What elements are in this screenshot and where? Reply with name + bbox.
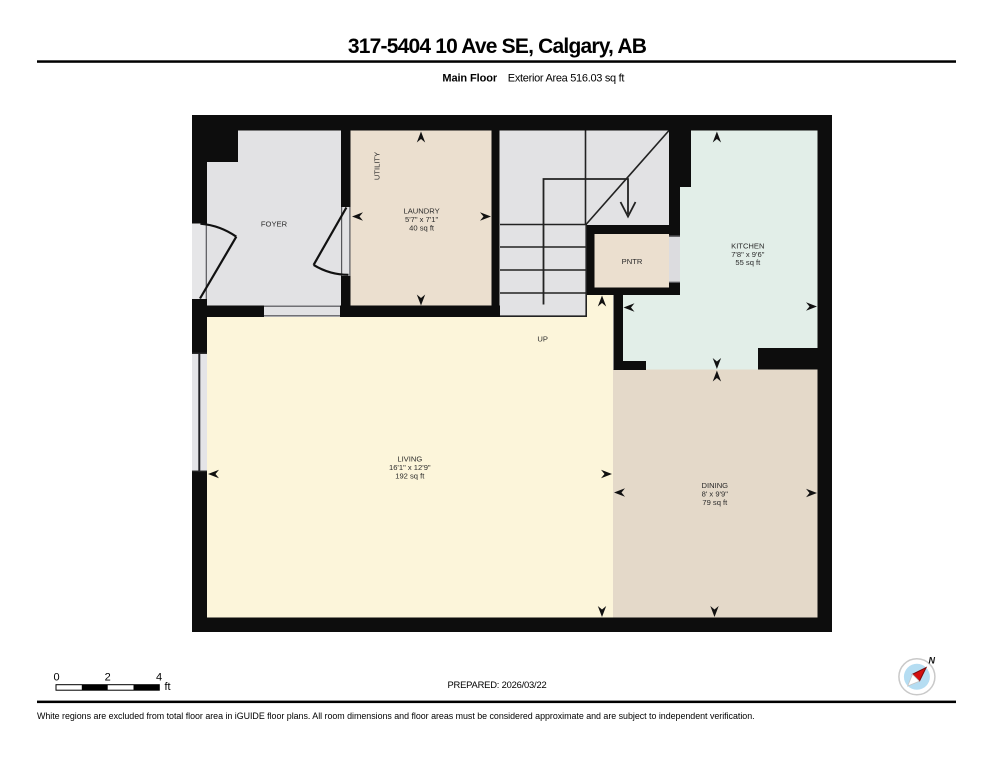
svg-text:UTILITY: UTILITY	[373, 152, 382, 180]
svg-text:55 sq ft: 55 sq ft	[735, 258, 761, 267]
svg-text:UP: UP	[537, 334, 548, 343]
svg-text:40 sq ft: 40 sq ft	[409, 223, 435, 232]
svg-text:PREPARED: 2026/03/22: PREPARED: 2026/03/22	[447, 679, 546, 690]
svg-text:White regions are excluded fro: White regions are excluded from total fl…	[37, 711, 755, 721]
svg-text:317-5404 10 Ave SE, Calgary, A: 317-5404 10 Ave SE, Calgary, AB	[348, 35, 647, 58]
svg-text:Main Floor: Main Floor	[442, 73, 497, 85]
svg-text:FOYER: FOYER	[261, 219, 288, 228]
svg-text:ft: ft	[165, 681, 171, 693]
svg-text:79 sq ft: 79 sq ft	[702, 498, 728, 507]
svg-text:0: 0	[53, 671, 59, 683]
svg-text:Exterior Area 516.03 sq ft: Exterior Area 516.03 sq ft	[508, 73, 625, 85]
svg-text:PNTR: PNTR	[622, 257, 643, 266]
svg-text:2: 2	[105, 671, 111, 683]
svg-text:4: 4	[156, 671, 162, 683]
svg-text:192 sq ft: 192 sq ft	[395, 471, 425, 480]
svg-text:N: N	[929, 656, 936, 666]
